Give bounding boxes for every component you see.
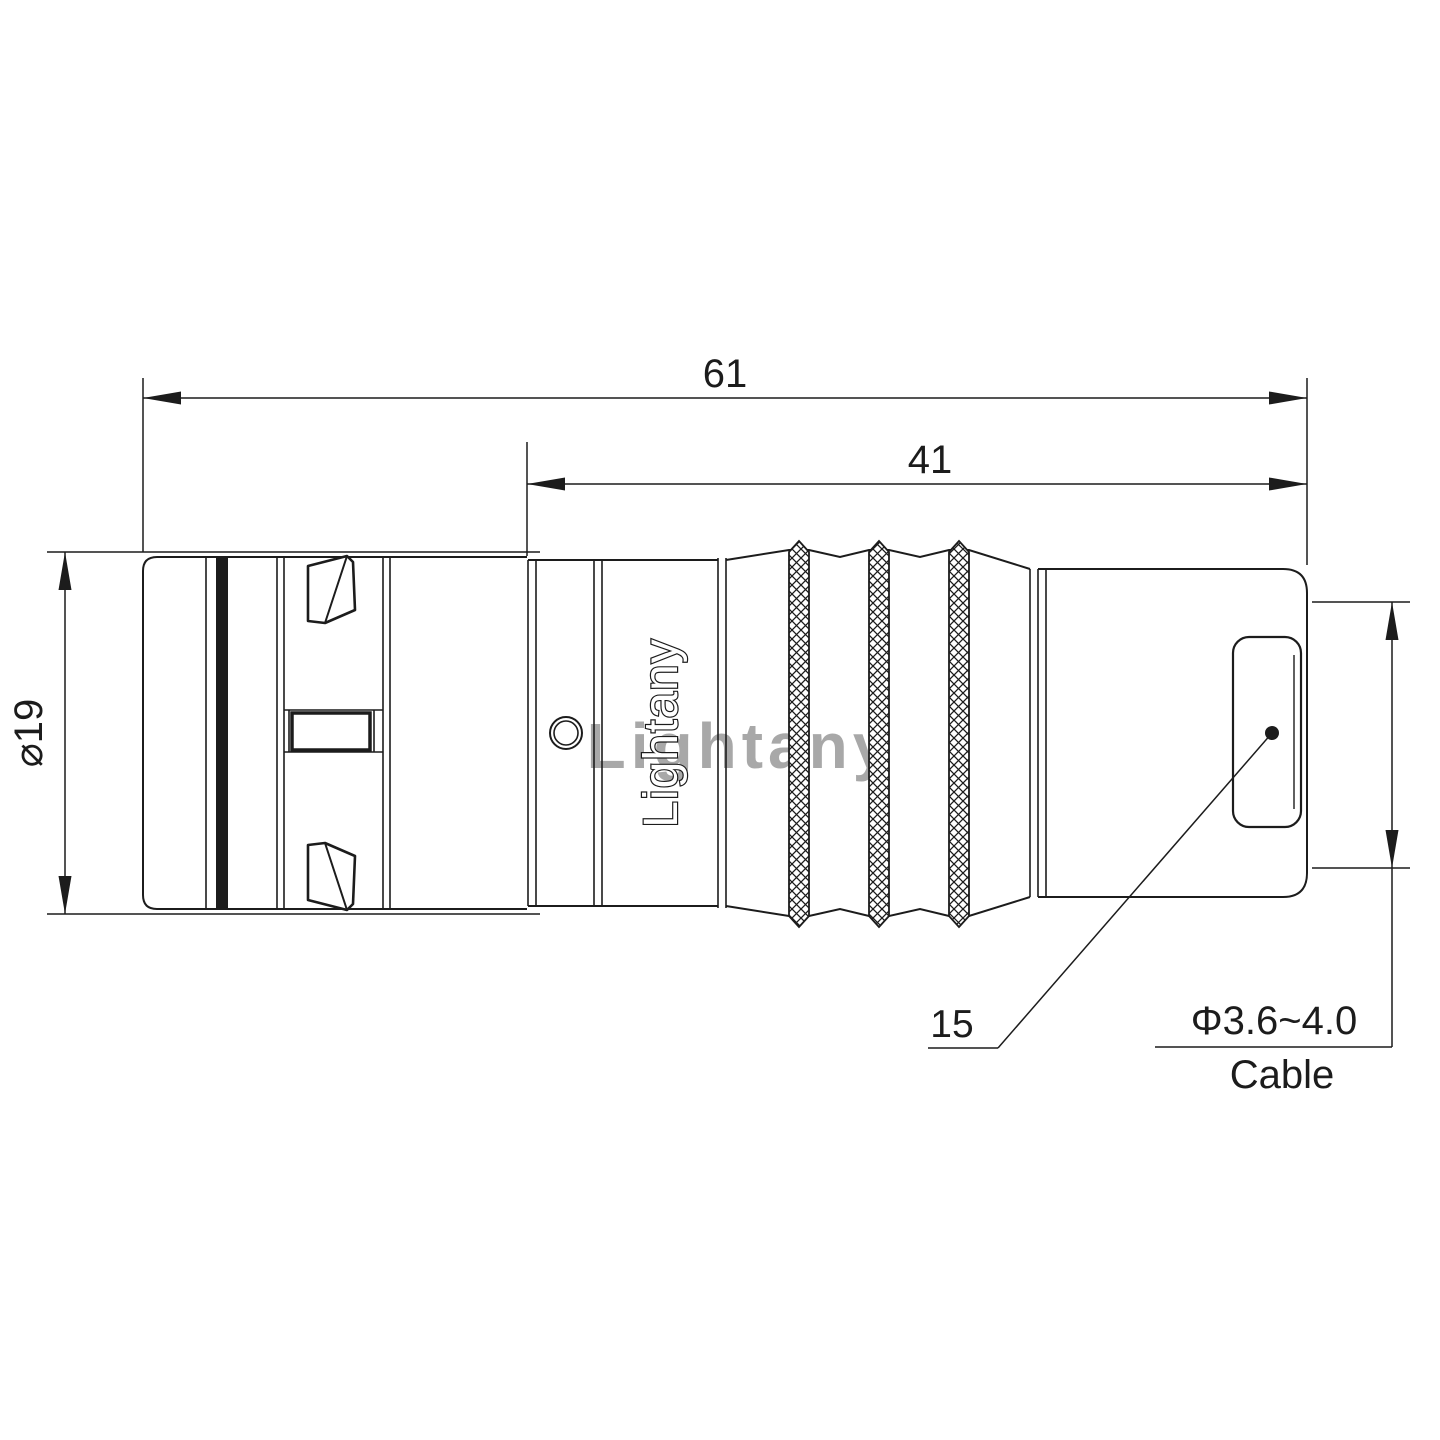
cable-range-value: Φ3.6~4.0 [1191, 999, 1357, 1043]
front-cap-outline [143, 557, 227, 909]
arrowhead-left-icon [143, 392, 181, 405]
arrowhead-down-icon [59, 876, 72, 914]
latch-ear-top-outline [308, 556, 355, 623]
latch-window [284, 710, 383, 752]
dim-outer-diameter-value: ⌀19 [7, 699, 51, 768]
arrowhead-up-icon [1386, 602, 1399, 640]
brand-marking-text: Lightany [635, 638, 688, 827]
dimension-outer-diameter: ⌀19 [7, 552, 540, 914]
arrowhead-down-icon [1386, 830, 1399, 868]
dim-sleeve-length-value: 41 [908, 438, 953, 482]
dimension-sleeve-length: 41 [527, 438, 1307, 556]
nut-callout-value: 15 [930, 1003, 973, 1046]
knurl-band [949, 541, 969, 927]
arrowhead-left-icon [527, 478, 565, 491]
latch-ear-top [308, 556, 355, 623]
release-sleeve [227, 556, 527, 910]
cable-label: Cable [1230, 1053, 1335, 1097]
arrowhead-up-icon [59, 552, 72, 590]
latch-ear-bottom [308, 843, 355, 910]
latch-window-bar [292, 713, 370, 750]
knurl-band [789, 541, 809, 927]
arrowhead-right-icon [1269, 392, 1307, 405]
shell-hole-inner [554, 721, 578, 745]
front-cap-black-band [217, 557, 227, 909]
knurl-band [869, 541, 889, 927]
dimension-total-length: 61 [143, 352, 1307, 565]
dim-total-length-value: 61 [703, 352, 748, 396]
technical-drawing-page: Lightany [0, 0, 1440, 1440]
latch-ear-bottom-outline [308, 843, 355, 910]
front-cap [143, 557, 227, 909]
arrowhead-right-icon [1269, 478, 1307, 491]
connector-drawing-svg: Lightany [0, 0, 1440, 1440]
watermark-text: Lightany [587, 710, 894, 782]
